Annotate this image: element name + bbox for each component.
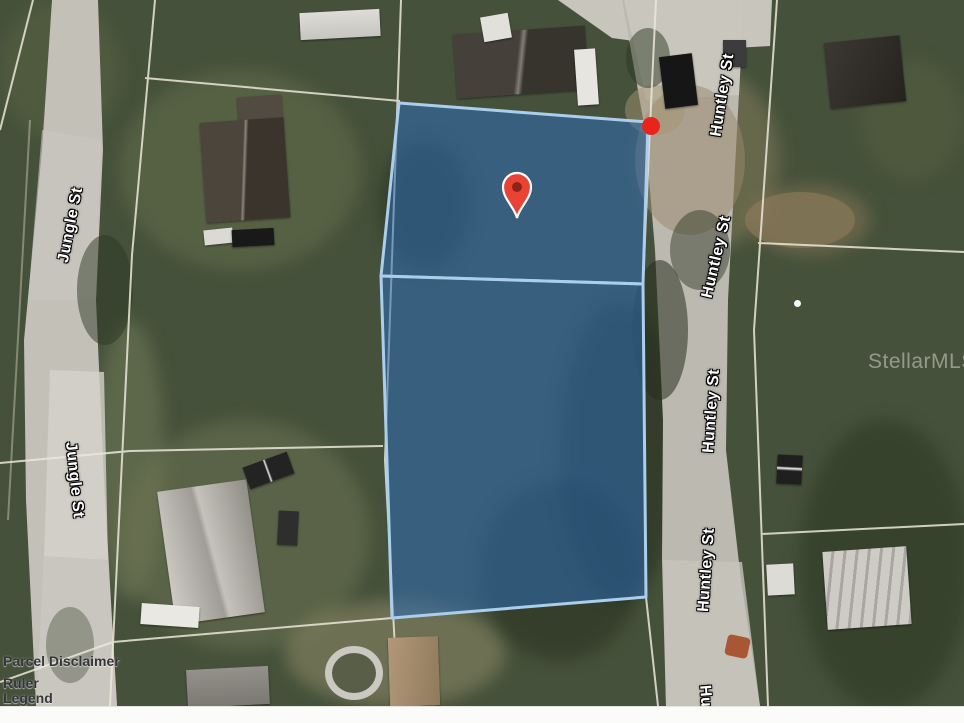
ruler-link[interactable]: Ruler (3, 675, 39, 691)
stellar-mls-watermark: StellarMLS (868, 350, 964, 374)
bottom-bar (0, 706, 964, 723)
parcel-corner-dot-marker[interactable] (642, 117, 660, 135)
mls-map-view: Jungle St Jungle St Huntley St Huntley S… (0, 0, 964, 723)
legend-link[interactable]: Legend (3, 690, 53, 706)
parcel-overlay-layer (0, 0, 964, 706)
parcel-disclaimer-link[interactable]: Parcel Disclaimer (3, 653, 120, 669)
satellite-map-canvas[interactable]: Jungle St Jungle St Huntley St Huntley S… (0, 0, 964, 706)
highlighted-parcel-lower[interactable] (381, 276, 646, 618)
